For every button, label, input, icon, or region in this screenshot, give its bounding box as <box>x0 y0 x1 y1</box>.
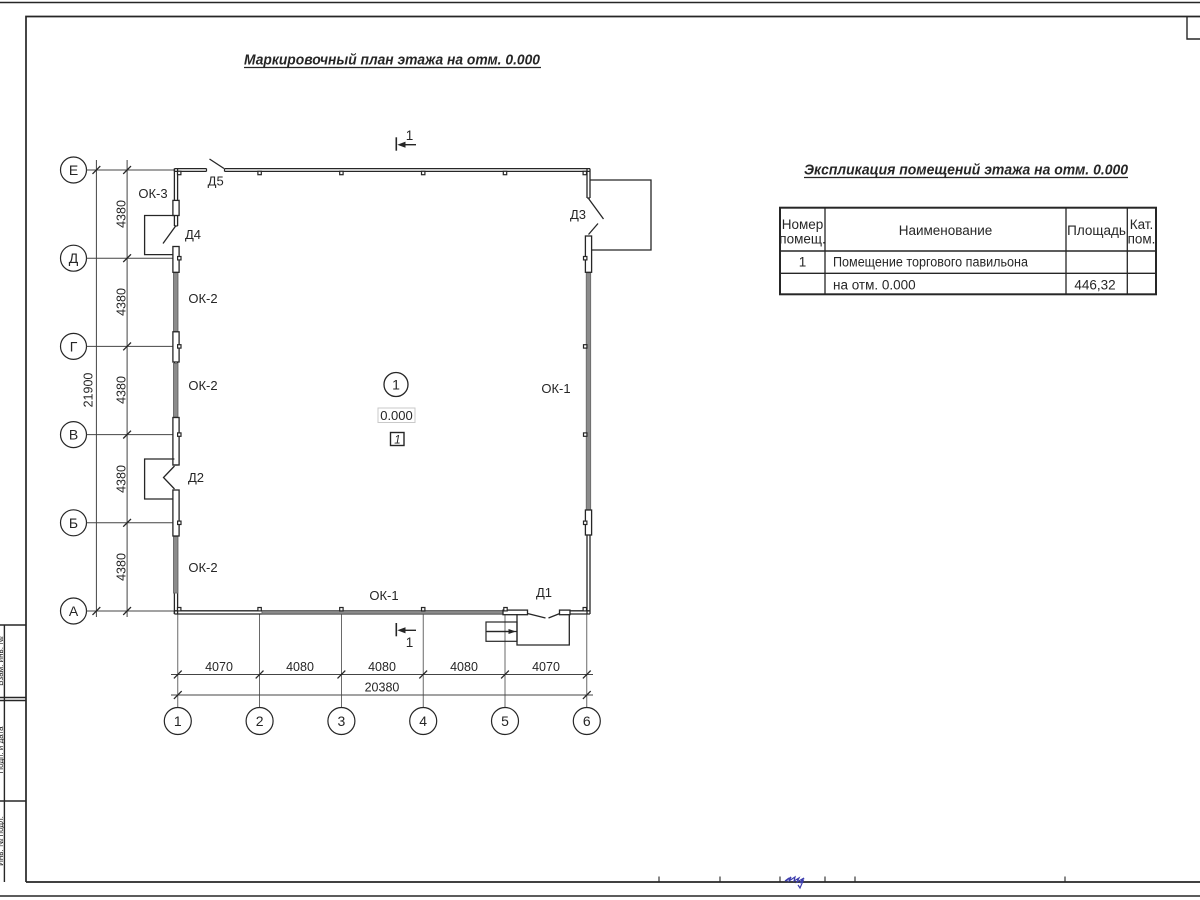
svg-text:Д4: Д4 <box>185 227 201 242</box>
svg-text:4380: 4380 <box>114 200 128 228</box>
svg-text:1: 1 <box>406 635 414 650</box>
svg-text:4380: 4380 <box>114 465 128 493</box>
svg-text:4380: 4380 <box>114 376 128 404</box>
svg-text:ОК-2: ОК-2 <box>188 378 217 393</box>
svg-text:21900: 21900 <box>82 373 96 408</box>
svg-text:Г: Г <box>70 338 78 354</box>
svg-text:ОК-1: ОК-1 <box>541 381 570 396</box>
svg-text:4070: 4070 <box>205 660 233 674</box>
svg-text:4080: 4080 <box>450 660 478 674</box>
svg-text:Кат.: Кат. <box>1130 217 1154 232</box>
svg-text:Д: Д <box>69 250 79 266</box>
svg-text:пом.: пом. <box>1128 232 1156 247</box>
svg-text:помещ.: помещ. <box>779 232 825 247</box>
svg-text:Б: Б <box>69 515 78 531</box>
svg-text:Д2: Д2 <box>188 470 204 485</box>
svg-text:ОК-2: ОК-2 <box>188 291 217 306</box>
svg-text:4080: 4080 <box>368 660 396 674</box>
svg-text:Д5: Д5 <box>208 174 224 189</box>
svg-text:1: 1 <box>406 128 414 143</box>
svg-text:1: 1 <box>394 435 400 447</box>
svg-text:Площадь: Площадь <box>1067 223 1126 238</box>
svg-text:1: 1 <box>799 255 807 270</box>
svg-text:Инв. № подл.: Инв. № подл. <box>0 816 5 866</box>
svg-text:Экспликация помещений этажа на: Экспликация помещений этажа на отм. 0.00… <box>804 162 1129 179</box>
svg-text:5: 5 <box>501 713 509 729</box>
svg-text:ОК-3: ОК-3 <box>138 186 167 201</box>
svg-text:1: 1 <box>174 713 182 729</box>
svg-text:4380: 4380 <box>114 288 128 316</box>
svg-text:Наименование: Наименование <box>899 223 993 238</box>
svg-text:Помещение торгового павильона: Помещение торгового павильона <box>833 255 1028 270</box>
svg-text:3: 3 <box>338 713 346 729</box>
svg-text:на отм. 0.000: на отм. 0.000 <box>833 278 916 293</box>
svg-text:0.000: 0.000 <box>380 408 413 423</box>
svg-text:ОК-2: ОК-2 <box>188 560 217 575</box>
svg-text:Взам. инв. №: Взам. инв. № <box>0 636 5 686</box>
svg-text:Е: Е <box>69 162 78 178</box>
svg-text:20380: 20380 <box>365 681 400 695</box>
svg-text:4080: 4080 <box>286 660 314 674</box>
svg-text:В: В <box>69 427 78 443</box>
svg-text:4380: 4380 <box>114 553 128 581</box>
svg-text:Д3: Д3 <box>570 207 586 222</box>
svg-text:4: 4 <box>419 713 427 729</box>
svg-text:Номер: Номер <box>782 217 824 232</box>
svg-text:4070: 4070 <box>532 660 560 674</box>
svg-text:6: 6 <box>583 713 591 729</box>
svg-text:Маркировочный план этажа на от: Маркировочный план этажа на отм. 0.000 <box>244 52 541 69</box>
svg-text:1: 1 <box>392 377 400 393</box>
svg-text:2: 2 <box>256 713 264 729</box>
svg-text:ОК-1: ОК-1 <box>369 588 398 603</box>
svg-text:Д1: Д1 <box>536 585 552 600</box>
svg-text:Подп. и дата: Подп. и дата <box>0 726 5 774</box>
svg-text:А: А <box>69 603 79 619</box>
svg-text:446,32: 446,32 <box>1074 278 1115 293</box>
